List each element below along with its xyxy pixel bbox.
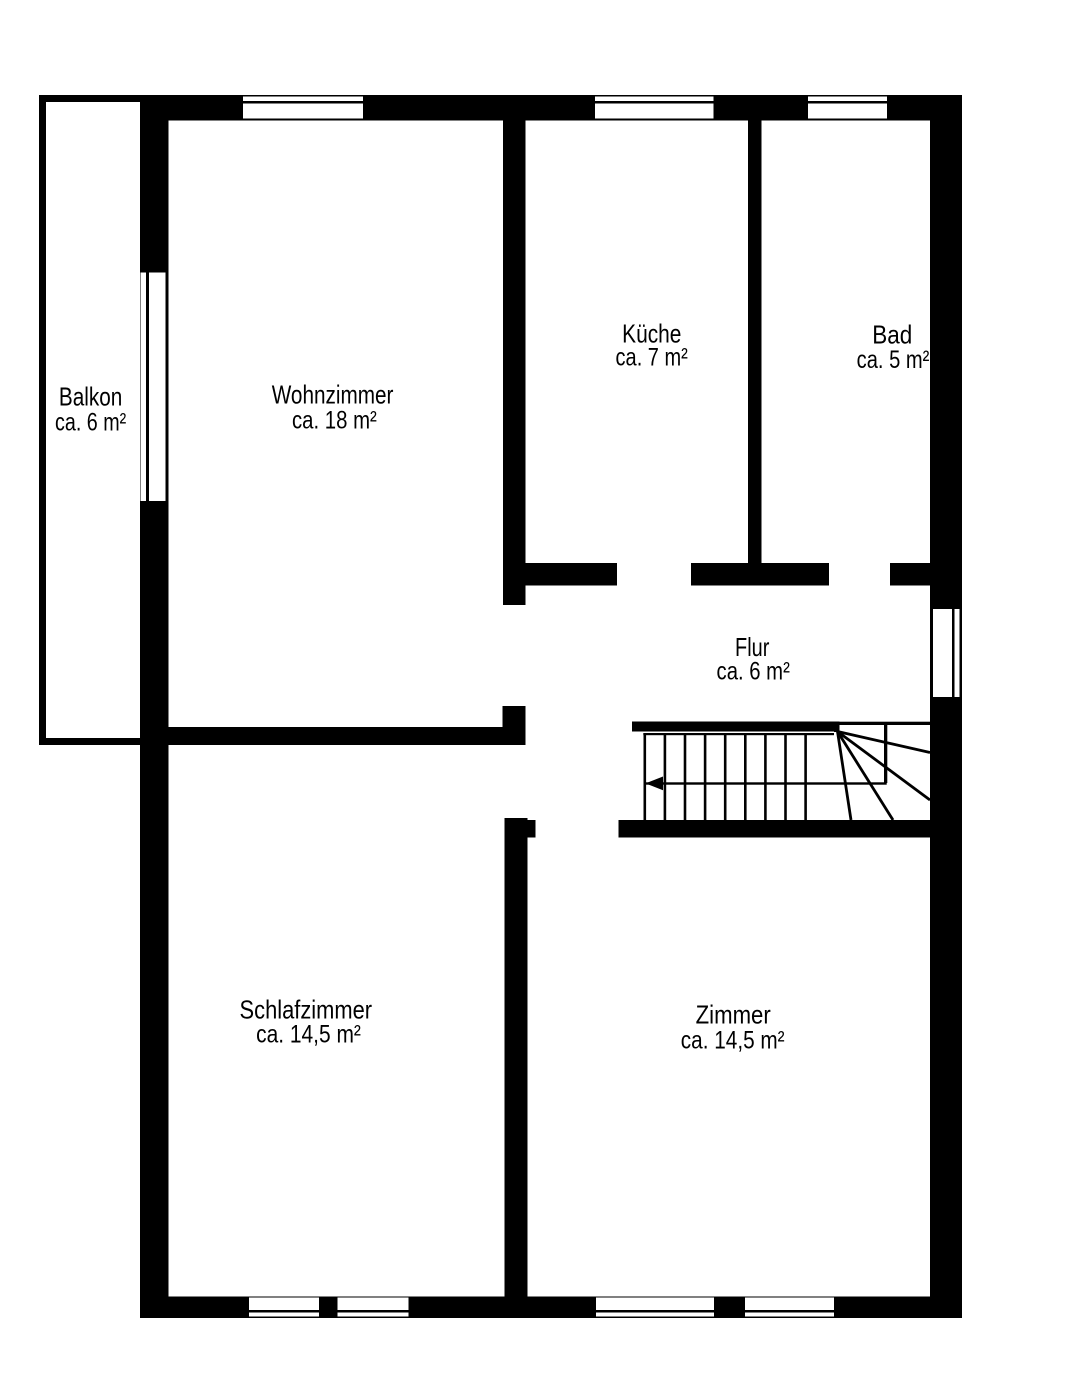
svg-text:ca. 5 m²: ca. 5 m² xyxy=(857,346,930,374)
svg-text:Zimmer: Zimmer xyxy=(696,999,771,1029)
svg-text:Wohnzimmer: Wohnzimmer xyxy=(272,380,394,410)
svg-text:ca. 6 m²: ca. 6 m² xyxy=(55,409,126,437)
svg-text:ca. 6 m²: ca. 6 m² xyxy=(717,657,790,685)
svg-text:ca. 14,5 m²: ca. 14,5 m² xyxy=(256,1021,361,1049)
svg-text:Balkon: Balkon xyxy=(59,382,122,412)
svg-text:ca. 18 m²: ca. 18 m² xyxy=(292,407,377,435)
svg-text:ca. 7 m²: ca. 7 m² xyxy=(616,344,688,372)
svg-text:ca. 14,5 m²: ca. 14,5 m² xyxy=(681,1026,785,1054)
